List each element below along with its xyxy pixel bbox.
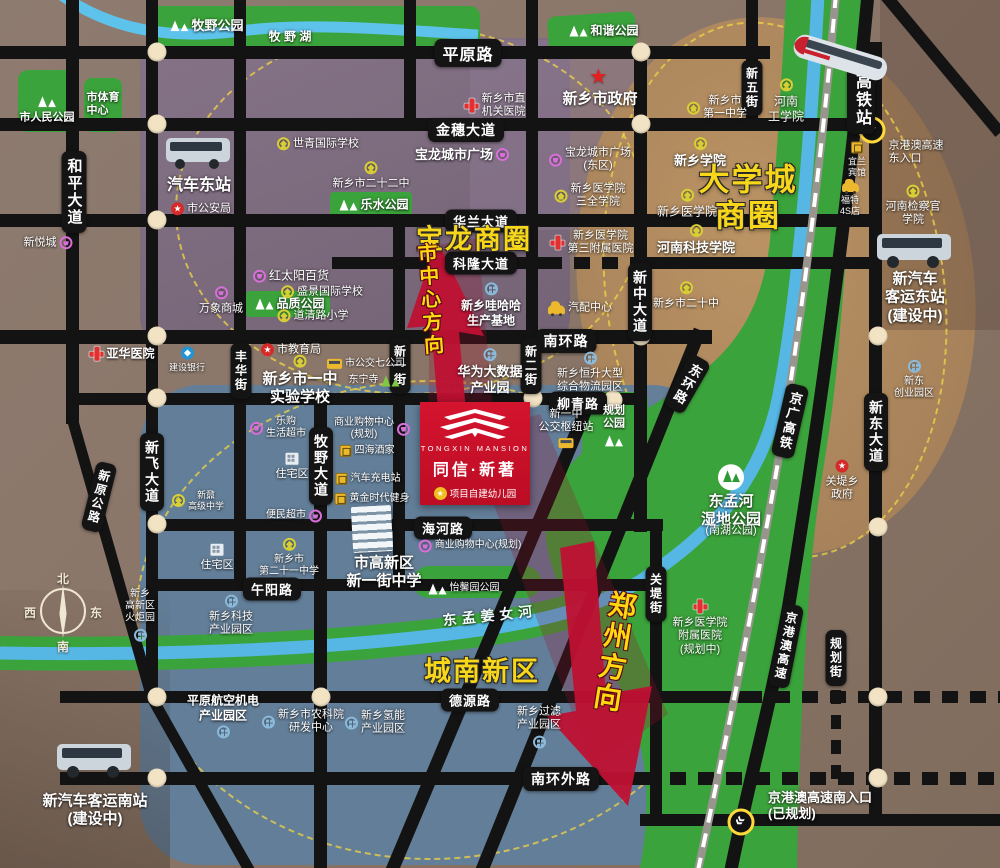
landmark-label: 新乡医学院 附属医院 (规划中) [673, 616, 728, 656]
landmark-label: 怡馨园公园 [450, 583, 500, 595]
landmark: 东宁寺 [349, 375, 400, 388]
home-icon [211, 544, 224, 556]
fact-icon [216, 726, 229, 739]
road-label: 平原路 [434, 39, 501, 67]
landmark: 新悦城 [24, 236, 73, 249]
landmark: 市人民公园 [20, 95, 75, 124]
landmark-label: 新乡氢能 产业园区 [361, 710, 405, 737]
landmark: 道清路小学 [278, 309, 349, 322]
trees-icon [382, 375, 400, 388]
landmark: 商业购物中心 (规划) [334, 417, 410, 441]
road-label: 新二街 [521, 338, 542, 394]
landmark-label: 道清路小学 [294, 309, 349, 322]
landmark-label: 新乡市政府 [562, 90, 637, 108]
landmark-label: 东宁寺 [349, 375, 379, 387]
tongxin-logo-icon [436, 407, 514, 441]
cross-icon [465, 99, 479, 113]
landmark: 福特 4S店 [840, 179, 860, 217]
landmark: 建设银行 [169, 347, 205, 374]
school-icon [687, 102, 700, 115]
landmark: 牧 野 湖 [269, 30, 312, 45]
gov-icon [171, 203, 184, 216]
landmark-label: 宝龙城市广场 (东区) [565, 147, 631, 174]
landmark: 亚华医院 [89, 347, 154, 362]
sq-icon [335, 493, 347, 505]
landmark-label: 汽车东站 [167, 176, 231, 196]
landmark-label: 河南检察官 学院 [886, 201, 941, 228]
landmark-label: 京港澳高速南入口 (已规划) [768, 790, 872, 822]
landmark-label: 关堤乡 政府 [826, 476, 859, 503]
landmark-label: 市体育 中心 [87, 92, 120, 119]
landmark-label: 平原航空机电 产业园区 [187, 693, 259, 722]
landmark: 市高新区 新一街中学 [346, 555, 421, 592]
school-building-illustration [351, 505, 393, 553]
landmark: 新乡医学院 附属医院 (规划中) [673, 599, 728, 656]
expressway-interchange-icon [728, 809, 755, 836]
sq-icon [851, 142, 863, 154]
landmark-label: 宜兰 宾馆 [848, 157, 866, 179]
landmark-label: 世青国际学校 [293, 137, 359, 150]
shop-icon [496, 148, 509, 161]
landmark-label: 商业购物中心(规划) [435, 540, 522, 552]
road-label: 南环外路 [523, 767, 599, 791]
road-label: 德源路 [441, 689, 499, 712]
train-illustration [790, 14, 910, 104]
cross-icon [693, 599, 707, 613]
landmark: 京港澳高速南入口 (已规划) [768, 790, 872, 822]
landmark: 京港澳高速 东入口 [889, 140, 944, 167]
road-label: 丰华街 [231, 343, 252, 399]
landmark: 河南检察官 学院 [886, 185, 941, 228]
landmark: 新乡恒升大型 综合物流园区 [557, 352, 623, 395]
road-label: 和平大道 [62, 151, 87, 233]
landmark: 平原航空机电 产业园区 [187, 693, 259, 738]
landmark: 规划 公园 [603, 405, 625, 448]
landmark-label: 新乡市二十中 [653, 297, 719, 310]
trees-icon [339, 199, 357, 212]
landmark: 关堤乡 政府 [826, 460, 859, 503]
landmark-label: 宝龙城市广场 [415, 147, 493, 163]
landmark: 新鼐 高级中学 [172, 490, 224, 512]
landmark: 宝龙城市广场 [415, 147, 509, 163]
landmark: 新乡市农科院 研发中心 [262, 709, 344, 736]
landmark: 万象商城 [199, 286, 243, 315]
road-label: 新中大道 [628, 263, 652, 341]
landmark: 宝龙城市广场 (东区) [549, 147, 631, 174]
landmark: 乐水公园 [339, 198, 408, 213]
compass-east: 东 [90, 604, 102, 621]
fact-icon [134, 628, 147, 641]
compass-west: 西 [24, 604, 36, 621]
landmark-label: (南湖公园) [705, 524, 756, 537]
trees-icon [255, 298, 273, 311]
landmark-label: 规划 公园 [603, 405, 625, 432]
landmark: 汽车充电站 [336, 473, 401, 485]
landmark: 新乡市 第二十一中学 [259, 538, 319, 578]
landmark-label: 新汽车 客运东站 (建设中) [885, 271, 945, 326]
road-label: 规划街 [826, 630, 847, 686]
fact-icon [584, 352, 597, 365]
landmark-label: 黄金时代健身 [350, 493, 410, 505]
landmark-label: 市高新区 新一街中学 [346, 555, 421, 592]
fact-icon [225, 595, 238, 608]
landmark-label: 盛景国际学校 [297, 285, 363, 298]
landmark: 住宅区 [201, 544, 234, 572]
landmark-label: 乐水公园 [360, 198, 408, 213]
landmark-label: 京港澳高速 东入口 [889, 140, 944, 167]
landmark: 新乡市政府 [562, 67, 637, 108]
school-icon [293, 355, 306, 368]
landmark-label: 新乡过滤 产业园区 [517, 706, 561, 733]
project-name-en: TONGXIN MANSION [421, 444, 530, 453]
gov-icon [836, 460, 849, 473]
landmark-label: 新乡科技 产业园区 [209, 611, 253, 638]
landmark-label: 华为大数据 产业园 [457, 364, 522, 396]
project-marker: TONGXIN MANSION 同信·新著 项目自建幼儿园 [420, 402, 530, 505]
bank-icon [180, 347, 193, 360]
fact-icon [262, 716, 275, 729]
landmark: 新汽车客运南站 (建设中) [42, 793, 147, 830]
landmark: 汽车东站 [167, 176, 231, 196]
shop-icon [309, 510, 322, 523]
landmark: 新乡市二十中 [653, 281, 719, 310]
landmark-label: 新鼐 高级中学 [188, 490, 224, 512]
trees-icon [170, 19, 188, 32]
road-label: 海河路 [414, 517, 472, 540]
landmark: 新乡医学院 三全学院 [555, 183, 626, 210]
cross-icon [551, 236, 565, 250]
fact-icon [484, 282, 497, 295]
school-icon [172, 495, 185, 508]
landmark-label: 万象商城 [199, 302, 243, 315]
landmark: 新东 创业园区 [894, 360, 934, 400]
landmark-label: 和谐公园 [590, 24, 638, 39]
road-label: 金穗大道 [428, 118, 504, 142]
shop-icon [253, 270, 266, 283]
road-label: 新东大道 [864, 393, 888, 471]
landmark: 新汽车 客运东站 (建设中) [885, 271, 945, 326]
project-name-cn: 同信·新著 [433, 456, 517, 480]
landmark: 四海酒家 [340, 445, 395, 457]
landmark: 市公安局 [171, 202, 231, 215]
landmark: 和谐公园 [569, 24, 638, 39]
landmark-label: 市公交七公司 [345, 358, 405, 370]
landmark-label: 新乡恒升大型 综合物流园区 [557, 368, 623, 395]
bus-illustration [875, 226, 957, 276]
landmark: 新一中 公交枢纽站 [539, 408, 594, 448]
home-icon [286, 453, 299, 465]
landmark: 黄金时代健身 [335, 493, 410, 505]
landmark-label: 新悦城 [24, 236, 57, 249]
landmark: 新乡科技 产业园区 [209, 595, 253, 638]
landmark: 市体育 中心 [87, 92, 120, 119]
landmark-label: 市公安局 [187, 202, 231, 215]
landmark: 新乡哇哈哈 生产基地 [461, 282, 521, 327]
landmark-label: 亚华医院 [106, 347, 154, 362]
landmark: 红太阳百货 [253, 269, 329, 284]
business-circle-label: 大学城 商圈 [699, 162, 798, 233]
landmark: (南湖公园) [705, 524, 756, 537]
landmark: 便民超市 [266, 510, 322, 523]
cross-icon [89, 347, 103, 361]
landmark-label: 市人民公园 [20, 111, 75, 124]
landmark: 盛景国际学校 [281, 285, 363, 298]
landmark: 新乡医学院 第三附属医院 [551, 230, 634, 257]
road-label: 南环路 [536, 329, 597, 353]
landmark-label: 便民超市 [266, 510, 306, 522]
school-icon [277, 138, 290, 151]
landmark-label: 商业购物中心 (规划) [334, 417, 394, 441]
landmark: 世青国际学校 [277, 137, 359, 150]
road-label: 关堤街 [646, 566, 667, 622]
sq-icon [340, 445, 352, 457]
landmark: 市公交七公司 [327, 358, 405, 370]
landmark-label: 新乡市二十二中 [333, 177, 410, 190]
landmark: 牧野公园 [170, 18, 243, 34]
shop-icon [549, 154, 562, 167]
shop-icon [215, 286, 228, 299]
business-circle-label: 城南新区 [424, 656, 540, 687]
kindergarten-icon [434, 487, 447, 500]
landmark: 怡馨园公园 [429, 583, 500, 596]
trees-icon [429, 583, 447, 596]
school-icon [907, 185, 920, 198]
landmark: 新乡 高新区 火炬园 [125, 589, 155, 642]
sq-icon [336, 473, 348, 485]
landmark: 华为大数据 产业园 [457, 348, 522, 396]
landmark-label: 新乡 高新区 火炬园 [125, 589, 155, 626]
school-icon [283, 538, 296, 551]
star-icon [589, 67, 611, 87]
landmark-label: 新一中 公交枢纽站 [539, 408, 594, 435]
landmark: 新乡市二十二中 [333, 161, 410, 190]
fact-icon [908, 360, 921, 373]
landmark: 新乡氢能 产业园区 [345, 710, 405, 737]
wet-icon [718, 464, 744, 490]
landmark-label: 住宅区 [201, 559, 234, 572]
landmark: 乐购 生活超市 [250, 416, 306, 440]
school-icon [680, 281, 693, 294]
landmark: 宜兰 宾馆 [848, 142, 866, 179]
landmark: 商业购物中心(规划) [419, 540, 522, 553]
road-label: 牧野大道 [309, 427, 333, 505]
trees-icon [569, 25, 587, 38]
landmark-label: 新乡哇哈哈 生产基地 [461, 298, 521, 327]
landmark-label: 汽配中心 [568, 301, 612, 314]
car-icon [548, 306, 565, 315]
landmark-label: 新东 创业园区 [894, 376, 934, 400]
fact-icon [345, 717, 358, 730]
compass: 北 东 南 西 [26, 574, 100, 652]
school-icon [281, 286, 294, 299]
shop-icon [419, 540, 432, 553]
landmark-label: 新乡市农科院 研发中心 [278, 709, 344, 736]
bus-icon [559, 438, 574, 448]
landmark-label: 汽车充电站 [351, 473, 401, 485]
trees-icon [38, 95, 56, 108]
shop-icon [60, 237, 73, 250]
landmark: 住宅区 [276, 453, 309, 481]
landmark-label: 新乡市 第二十一中学 [259, 554, 319, 578]
landmark-label: 新乡市 第一中学 [703, 95, 747, 122]
bus-icon [327, 359, 342, 369]
fact-icon [483, 348, 496, 361]
landmark: 新乡市 第一中学 [687, 95, 747, 122]
landmark-label: 新乡市直 机关医院 [482, 93, 526, 120]
landmark-label: 乐购 生活超市 [266, 416, 306, 440]
project-kindergarten-note: 项目自建幼儿园 [434, 486, 517, 500]
landmark-label: 四海酒家 [355, 445, 395, 457]
landmark-label: 住宅区 [276, 468, 309, 481]
trees-icon [605, 434, 623, 447]
landmark: 汽配中心 [548, 301, 612, 314]
landmark-label: 新汽车客运南站 (建设中) [42, 793, 147, 830]
landmark-label: 新乡医学院 三全学院 [571, 183, 626, 210]
school-icon [555, 190, 568, 203]
map-canvas: 北 东 南 西 [0, 0, 1000, 868]
school-icon [365, 161, 378, 174]
landmark: 东孟河 湿地公园 [701, 464, 761, 530]
landmark-label: 牧 野 湖 [269, 30, 312, 45]
school-icon [278, 310, 291, 323]
landmark-label: 建设银行 [169, 363, 205, 374]
landmark-label: 福特 4S店 [840, 195, 860, 217]
road-label: 新飞大道 [140, 433, 164, 511]
landmark-label: 红太阳百货 [269, 269, 329, 284]
fact-icon [533, 735, 546, 748]
shop-icon [397, 423, 410, 436]
landmark: 新乡市直 机关医院 [465, 93, 526, 120]
car-icon [841, 183, 858, 192]
landmark-label: 新乡医学院 第三附属医院 [568, 230, 634, 257]
school-icon [693, 137, 706, 150]
bus-illustration [164, 132, 236, 176]
landmark-label: 牧野公园 [191, 18, 243, 34]
bus-illustration [55, 736, 137, 786]
school-icon [680, 189, 693, 202]
landmark-label: 新乡市一中 实验学校 [262, 371, 337, 408]
compass-south: 南 [57, 638, 69, 655]
shop-icon [250, 422, 263, 435]
landmark-label: 河南科技学院 [657, 240, 735, 256]
landmark: 新乡过滤 产业园区 [517, 706, 561, 749]
